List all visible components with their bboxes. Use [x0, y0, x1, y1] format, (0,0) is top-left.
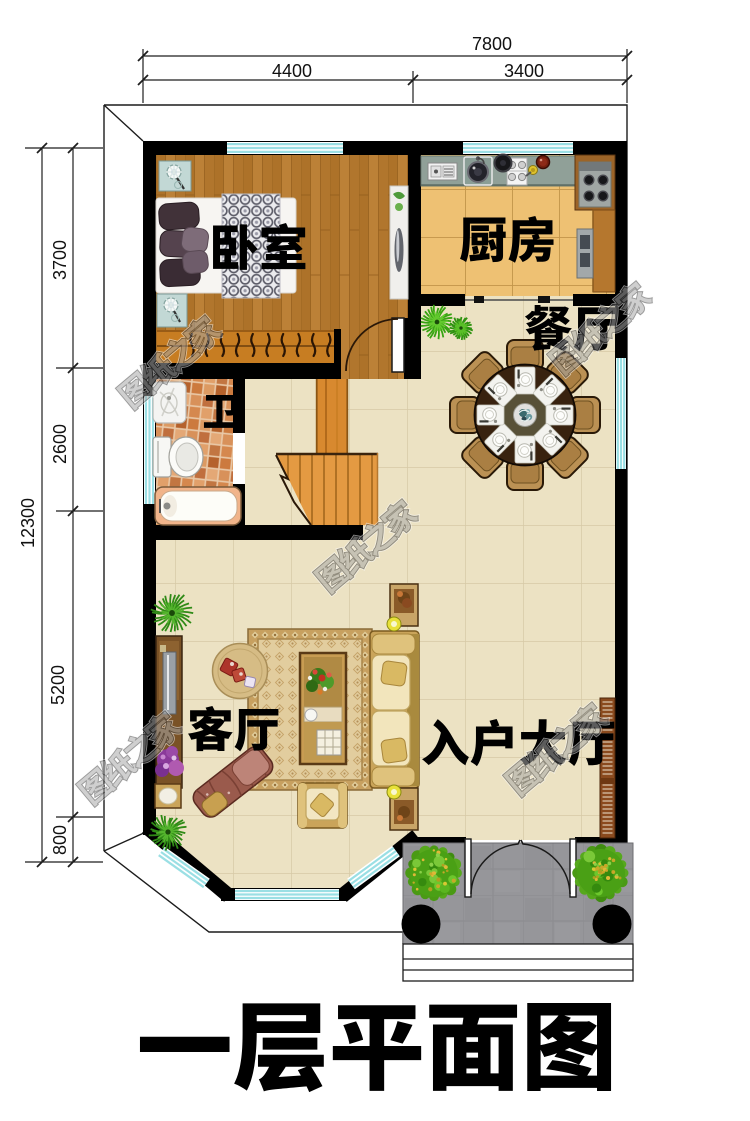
svg-text:4400: 4400 — [272, 61, 312, 81]
svg-text:12300: 12300 — [18, 498, 38, 548]
svg-text:7800: 7800 — [472, 34, 512, 54]
svg-text:3400: 3400 — [504, 61, 544, 81]
svg-text:800: 800 — [50, 825, 70, 855]
svg-text:2600: 2600 — [50, 424, 70, 464]
svg-text:3700: 3700 — [50, 240, 70, 280]
svg-text:5200: 5200 — [48, 665, 68, 705]
